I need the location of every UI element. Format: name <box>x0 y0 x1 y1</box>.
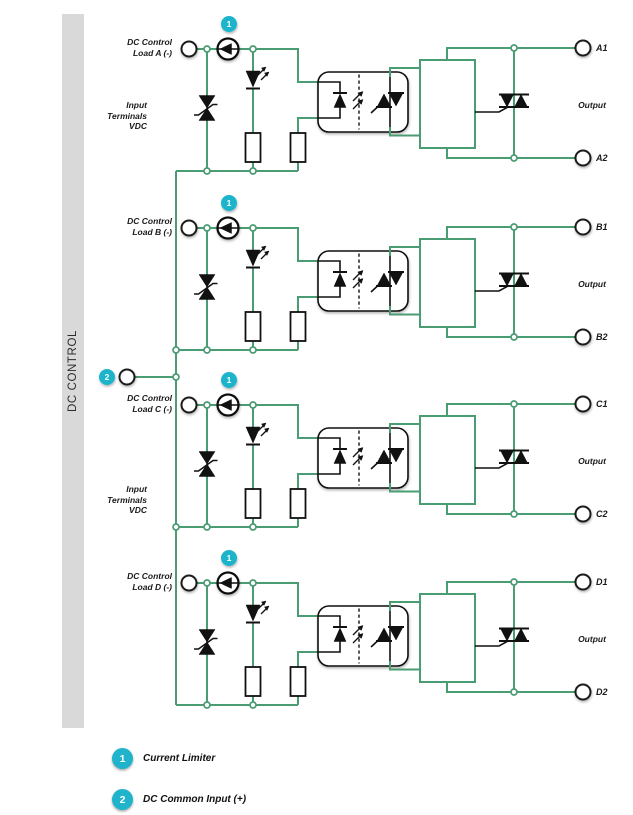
input-note-line: Terminals <box>27 111 147 122</box>
junction-dot <box>204 46 210 52</box>
triac-triangle <box>515 451 528 464</box>
triac-triangle <box>515 274 528 287</box>
tvs-lower-triangle <box>199 464 215 477</box>
load-label-line2: Load A (-) <box>52 48 172 59</box>
common-input-terminal <box>120 370 135 385</box>
junction-dot <box>204 347 210 353</box>
current-limiter-symbol <box>218 39 239 60</box>
output-triac-icon <box>475 451 529 469</box>
junction-dot <box>511 689 517 695</box>
output-label-C: Output <box>562 456 622 466</box>
output-terminal-C1 <box>576 397 591 412</box>
load-label-line2: Load B (-) <box>52 227 172 238</box>
junction-dot <box>511 334 517 340</box>
resistor-icon <box>246 133 261 162</box>
input-terminals-note: InputTerminalsVDC <box>27 100 147 132</box>
load-label-line2: Load D (-) <box>52 582 172 593</box>
driver-block <box>420 416 475 504</box>
current-limiter-symbol <box>218 395 239 416</box>
triac-triangle <box>515 95 528 108</box>
input-terminal-C <box>182 398 197 413</box>
load-label-line1: DC Control <box>52 216 172 227</box>
circuit-diagram-page: DC CONTROL 11112 DC ControlLoad A (-)Inp… <box>0 0 633 815</box>
terminal-label-D2: D2 <box>596 686 608 698</box>
channel-C: 1 <box>176 372 591 530</box>
junction-dot <box>204 225 210 231</box>
junction-dot <box>250 524 256 530</box>
input-note-line: Input <box>27 484 147 495</box>
output-label-D: Output <box>562 634 622 644</box>
driver-block <box>420 239 475 327</box>
terminal-label-A2: A2 <box>596 152 608 164</box>
output-terminal-B1 <box>576 220 591 235</box>
tvs-lower-triangle <box>199 642 215 655</box>
output-triac-icon <box>475 95 529 113</box>
junction-dot <box>204 702 210 708</box>
terminal-label-C1: C1 <box>596 398 608 410</box>
output-terminal-A1 <box>576 41 591 56</box>
terminal-label-A1: A1 <box>596 42 608 54</box>
led-triangle <box>246 605 260 621</box>
resistor-icon <box>291 312 306 341</box>
junction-dot <box>511 511 517 517</box>
load-label-C: DC ControlLoad C (-) <box>52 393 172 415</box>
input-note-line: Terminals <box>27 495 147 506</box>
load-label-line1: DC Control <box>52 393 172 404</box>
output-terminal-B2 <box>576 330 591 345</box>
load-label-A: DC ControlLoad A (-) <box>52 37 172 59</box>
output-terminal-C2 <box>576 507 591 522</box>
tvs-lower-triangle <box>199 108 215 121</box>
triac-triangle <box>501 451 514 464</box>
triac-triangle <box>515 629 528 642</box>
terminal-label-B1: B1 <box>596 221 608 233</box>
optocoupler-icon <box>318 251 408 311</box>
output-triac-icon <box>475 629 529 647</box>
output-label-B: Output <box>562 279 622 289</box>
legend-label-dc-common-input: DC Common Input (+) <box>143 794 246 805</box>
led-icon <box>246 67 269 89</box>
limiter-badge-B-number: 1 <box>227 198 232 208</box>
input-note-line: VDC <box>27 121 147 132</box>
resistor-icon <box>291 133 306 162</box>
driver-block <box>420 594 475 682</box>
tvs-lower-triangle <box>199 287 215 300</box>
triac-triangle <box>501 274 514 287</box>
legend-label-current-limiter: Current Limiter <box>143 753 215 764</box>
resistor-icon <box>246 312 261 341</box>
input-terminal-B <box>182 221 197 236</box>
output-terminal-A2 <box>576 151 591 166</box>
input-note-line: Input <box>27 100 147 111</box>
terminal-label-C2: C2 <box>596 508 608 520</box>
legend-item-dc-common-input: 2 DC Common Input (+) <box>112 789 246 810</box>
legend-badge-2: 2 <box>112 789 133 810</box>
limiter-badge-A-number: 1 <box>227 19 232 29</box>
terminal-label-D1: D1 <box>596 576 608 588</box>
tvs-diode-icon <box>194 275 218 300</box>
triac-triangle <box>501 95 514 108</box>
load-label-line1: DC Control <box>52 571 172 582</box>
resistor-icon <box>246 489 261 518</box>
output-triac-icon <box>475 274 529 292</box>
led-triangle <box>246 250 260 266</box>
common-input-badge-number: 2 <box>105 372 110 382</box>
junction-dot <box>250 580 256 586</box>
legend-badge-1: 1 <box>112 748 133 769</box>
channel-A: 1 <box>176 16 591 174</box>
tvs-diode-icon <box>194 630 218 655</box>
current-limiter-symbol <box>218 218 239 239</box>
junction-dot <box>250 168 256 174</box>
tvs-upper-triangle <box>199 96 215 109</box>
junction-dot <box>511 401 517 407</box>
junction-dot <box>173 374 179 380</box>
optocoupler-icon <box>318 72 408 132</box>
junction-dot <box>204 402 210 408</box>
load-label-line1: DC Control <box>52 37 172 48</box>
load-label-D: DC ControlLoad D (-) <box>52 571 172 593</box>
legend-item-current-limiter: 1 Current Limiter <box>112 748 215 769</box>
junction-dot <box>204 580 210 586</box>
output-terminal-D2 <box>576 685 591 700</box>
driver-block <box>420 60 475 148</box>
load-label-line2: Load C (-) <box>52 404 172 415</box>
junction-dot <box>250 46 256 52</box>
junction-dot <box>511 579 517 585</box>
limiter-badge-C-number: 1 <box>227 375 232 385</box>
led-icon <box>246 246 269 268</box>
input-terminals-note: InputTerminalsVDC <box>27 484 147 516</box>
junction-dot <box>250 225 256 231</box>
channel-D: 1 <box>176 550 591 708</box>
tvs-diode-icon <box>194 96 218 121</box>
led-triangle <box>246 71 260 87</box>
led-triangle <box>246 427 260 443</box>
dc-common-bus: 2 <box>99 171 179 705</box>
resistor-icon <box>291 489 306 518</box>
terminal-label-B2: B2 <box>596 331 608 343</box>
resistor-icon <box>246 667 261 696</box>
limiter-badge-D-number: 1 <box>227 553 232 563</box>
junction-dot <box>173 347 179 353</box>
junction-dot <box>204 524 210 530</box>
tvs-upper-triangle <box>199 630 215 643</box>
junction-dot <box>250 702 256 708</box>
junction-dot <box>511 45 517 51</box>
output-label-A: Output <box>562 100 622 110</box>
junction-dot <box>250 402 256 408</box>
input-terminal-A <box>182 42 197 57</box>
tvs-upper-triangle <box>199 452 215 465</box>
junction-dot <box>511 155 517 161</box>
junction-dot <box>511 224 517 230</box>
tvs-diode-icon <box>194 452 218 477</box>
tvs-upper-triangle <box>199 275 215 288</box>
load-label-B: DC ControlLoad B (-) <box>52 216 172 238</box>
junction-dot <box>250 347 256 353</box>
resistor-icon <box>291 667 306 696</box>
triac-triangle <box>501 629 514 642</box>
optocoupler-icon <box>318 428 408 488</box>
led-icon <box>246 601 269 623</box>
input-note-line: VDC <box>27 505 147 516</box>
current-limiter-symbol <box>218 573 239 594</box>
led-icon <box>246 423 269 445</box>
input-terminal-D <box>182 576 197 591</box>
optocoupler-icon <box>318 606 408 666</box>
output-terminal-D1 <box>576 575 591 590</box>
junction-dot <box>173 524 179 530</box>
junction-dot <box>204 168 210 174</box>
channel-B: 1 <box>176 195 591 353</box>
